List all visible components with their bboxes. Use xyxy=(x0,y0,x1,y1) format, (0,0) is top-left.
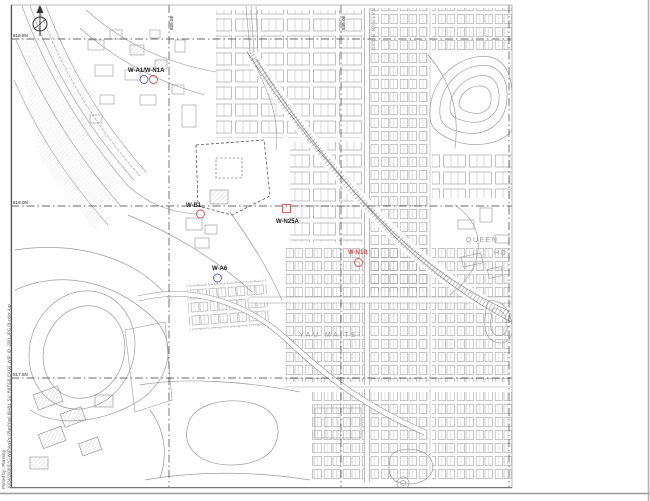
marker-w-b1: W-B1 xyxy=(186,203,205,218)
marker-label: W-N25A xyxy=(276,219,300,225)
easting-label-2: 836.0E xyxy=(341,15,346,30)
district-label: YAU MA TEI xyxy=(299,332,363,339)
plot-file-path-text: 10/24/2008 E:\C-WIP\ArcPc (Plan\Yau) 804… xyxy=(7,304,12,489)
marker-label: W-A1/W-N1A xyxy=(128,68,165,74)
map-drawing: 818.5N 818.0N 817.5N 835.5E 836.0E YAU M… xyxy=(11,5,512,489)
blue-circle-symbol xyxy=(140,76,148,84)
hatched-buildings-southwest xyxy=(30,386,113,469)
northing-label-3: 817.5N xyxy=(13,372,28,377)
hospital-label-line1: QUEEN xyxy=(466,237,498,244)
hospital-label-line2: HO xyxy=(494,250,508,257)
red-circle-symbol xyxy=(197,210,205,218)
marker-label: W-N1B xyxy=(348,250,368,256)
red-circle-symbol xyxy=(150,76,158,84)
northing-label-1: 818.5N xyxy=(13,33,28,38)
marker-label: W-B1 xyxy=(186,203,202,209)
building-blocks xyxy=(186,8,512,480)
road-label-vertical: NATHAN ROAD xyxy=(371,8,376,51)
blue-circle-symbol xyxy=(214,274,222,282)
marker-w-a6: W-A6 xyxy=(212,266,228,282)
easting-label-1: 835.5E xyxy=(169,15,174,30)
station-dashed-outline xyxy=(186,140,270,248)
hill-contours-northeast xyxy=(428,55,512,148)
plot-footer-text: Printed by : Planning 10/24/2008 E:\C-WI… xyxy=(1,304,12,489)
northing-label-2: 818.0N xyxy=(13,200,28,205)
marker-label: W-A6 xyxy=(212,266,228,272)
map-viewer-window: 818.5N 818.0N 817.5N 835.5E 836.0E YAU M… xyxy=(0,0,650,501)
marker-w-a1-w-n1a: W-A1/W-N1A xyxy=(128,68,165,84)
printed-by-text: Printed by : Planning xyxy=(1,450,6,489)
map-canvas[interactable]: 818.5N 818.0N 817.5N 835.5E 836.0E YAU M… xyxy=(0,0,650,501)
